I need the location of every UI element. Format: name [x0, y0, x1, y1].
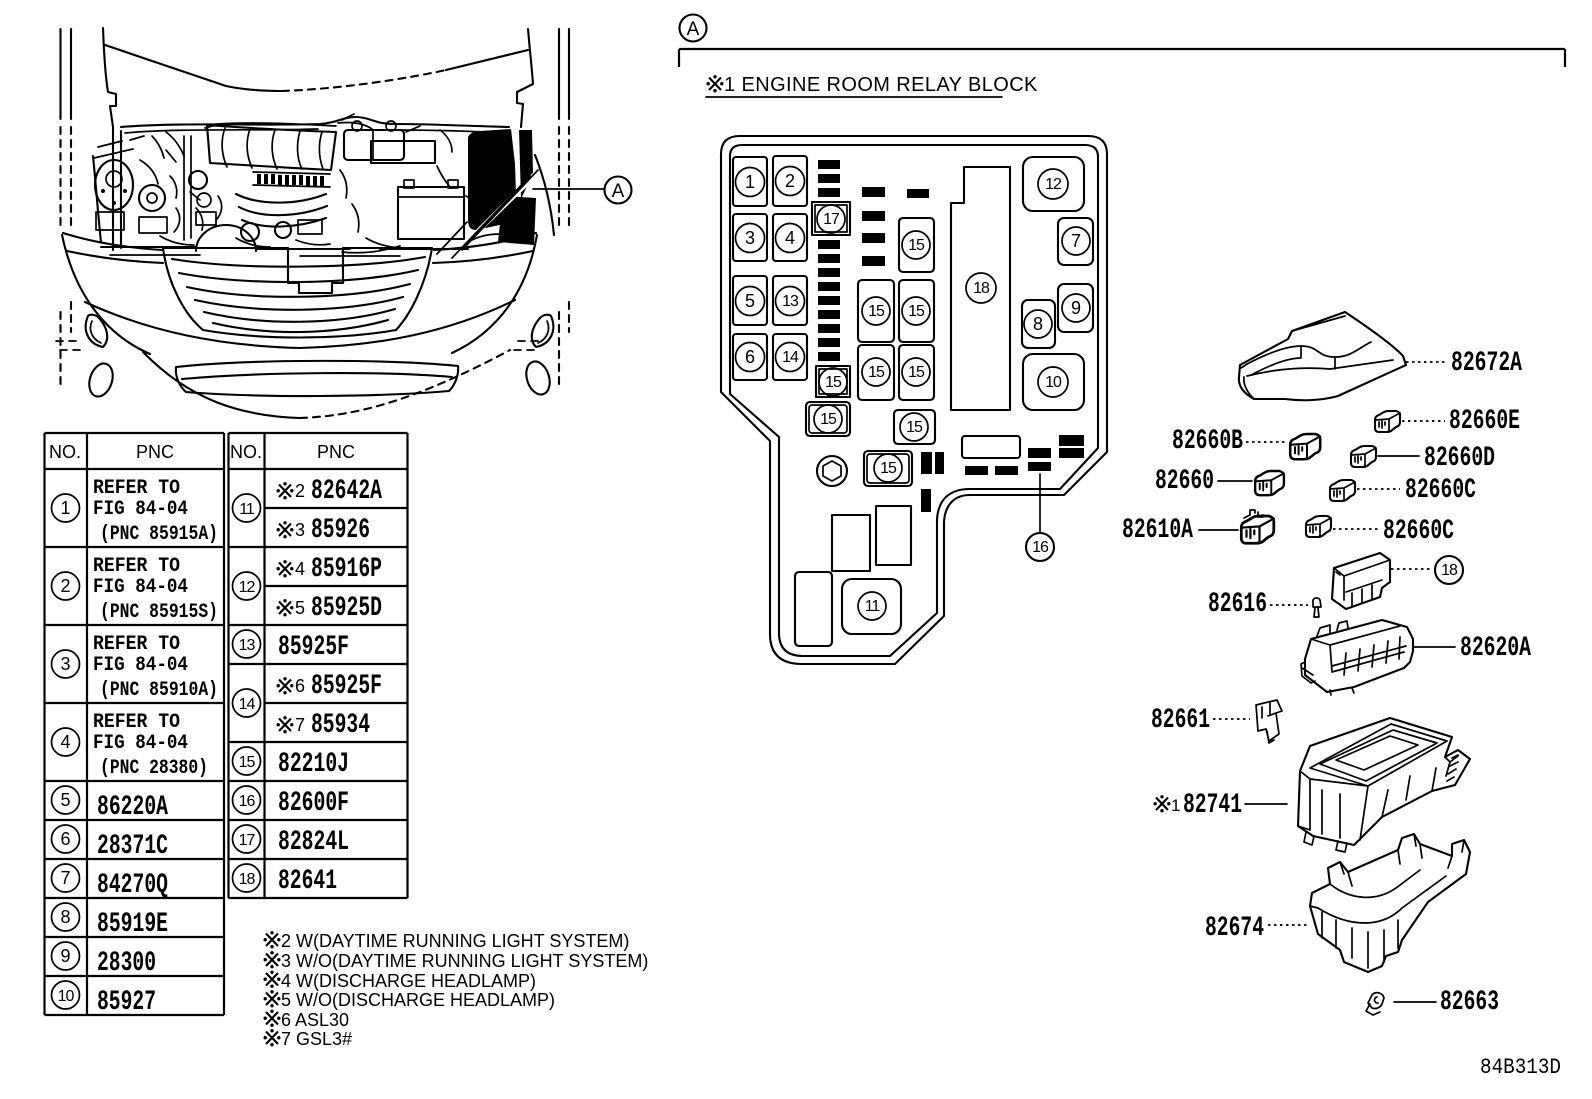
svg-text:15: 15 — [239, 754, 256, 771]
svg-text:12: 12 — [1045, 176, 1062, 193]
svg-text:6: 6 — [60, 829, 70, 849]
svg-text:13: 13 — [239, 637, 256, 654]
svg-text:82210J: 82210J — [278, 749, 349, 780]
svg-text:10: 10 — [1045, 374, 1062, 391]
svg-text:82600F: 82600F — [278, 788, 349, 819]
svg-text:82641: 82641 — [278, 866, 337, 897]
svg-text:82660C: 82660C — [1405, 475, 1476, 506]
svg-text:85916P: 85916P — [311, 554, 382, 585]
svg-text:1: 1 — [1171, 796, 1180, 815]
svg-text:7: 7 — [295, 715, 305, 735]
svg-text:FIG 84-04: FIG 84-04 — [93, 576, 188, 599]
svg-text:REFER TO: REFER TO — [93, 477, 180, 500]
svg-text:REFER TO: REFER TO — [93, 633, 180, 656]
svg-text:18: 18 — [973, 280, 990, 297]
svg-text:(PNC 28380): (PNC 28380) — [100, 757, 208, 780]
svg-text:9: 9 — [60, 946, 70, 966]
svg-text:82660: 82660 — [1155, 466, 1214, 497]
svg-text:18: 18 — [1441, 562, 1458, 579]
svg-text:NO.: NO. — [230, 442, 262, 462]
svg-text:15: 15 — [908, 364, 925, 381]
svg-text:PNC: PNC — [136, 442, 174, 462]
svg-text:85925D: 85925D — [311, 593, 382, 624]
svg-text:PNC: PNC — [317, 442, 355, 462]
svg-text:6 ASL30: 6 ASL30 — [281, 1010, 349, 1030]
svg-text:A: A — [687, 19, 700, 40]
svg-text:(PNC 85915A): (PNC 85915A) — [100, 523, 218, 546]
svg-text:15: 15 — [868, 303, 885, 320]
svg-text:82610A: 82610A — [1122, 515, 1193, 546]
svg-text:6: 6 — [295, 676, 305, 696]
svg-text:15: 15 — [825, 374, 842, 391]
svg-text:85919E: 85919E — [97, 909, 168, 940]
svg-text:82741: 82741 — [1183, 790, 1242, 821]
svg-text:12: 12 — [239, 579, 256, 596]
svg-text:82660D: 82660D — [1424, 443, 1495, 474]
svg-text:85934: 85934 — [311, 710, 370, 741]
svg-text:82660B: 82660B — [1172, 426, 1243, 457]
svg-text:15: 15 — [906, 419, 923, 436]
svg-text:82660E: 82660E — [1449, 406, 1520, 437]
svg-text:REFER TO: REFER TO — [93, 711, 180, 734]
svg-text:82642A: 82642A — [311, 476, 382, 507]
svg-text:13: 13 — [782, 293, 799, 310]
svg-text:3: 3 — [60, 654, 70, 674]
svg-text:5: 5 — [295, 598, 305, 618]
svg-text:4: 4 — [60, 732, 70, 752]
svg-text:(PNC 85915S): (PNC 85915S) — [100, 601, 218, 624]
svg-text:82672A: 82672A — [1451, 348, 1522, 379]
svg-text:11: 11 — [239, 501, 255, 518]
svg-text:15: 15 — [820, 411, 837, 428]
svg-text:85927: 85927 — [97, 987, 156, 1018]
svg-text:17: 17 — [239, 832, 256, 849]
svg-text:14: 14 — [239, 696, 256, 713]
svg-text:3 W/O(DAYTIME RUNNING LIGHT SY: 3 W/O(DAYTIME RUNNING LIGHT SYSTEM) — [281, 951, 648, 971]
svg-text:16: 16 — [239, 793, 256, 810]
svg-text:15: 15 — [908, 303, 925, 320]
svg-text:15: 15 — [880, 460, 897, 477]
svg-text:REFER TO: REFER TO — [93, 555, 180, 578]
svg-text:82663: 82663 — [1440, 987, 1499, 1018]
svg-text:4: 4 — [295, 559, 305, 579]
svg-text:82661: 82661 — [1151, 705, 1210, 736]
svg-text:7 GSL3#: 7 GSL3# — [281, 1029, 352, 1049]
svg-text:8: 8 — [1033, 314, 1043, 334]
svg-text:6: 6 — [745, 347, 755, 367]
svg-text:18: 18 — [239, 871, 256, 888]
svg-text:3: 3 — [295, 520, 305, 540]
svg-text:82674: 82674 — [1205, 913, 1264, 944]
svg-text:NO.: NO. — [49, 442, 81, 462]
svg-text:4 W(DISCHARGE HEADLAMP): 4 W(DISCHARGE HEADLAMP) — [281, 971, 536, 991]
svg-text:84270Q: 84270Q — [97, 870, 168, 901]
svg-text:1: 1 — [745, 172, 755, 192]
svg-text:85926: 85926 — [311, 515, 370, 546]
svg-text:16: 16 — [1032, 539, 1049, 556]
svg-text:2: 2 — [785, 171, 795, 191]
svg-text:15: 15 — [868, 364, 885, 381]
svg-text:FIG 84-04: FIG 84-04 — [93, 498, 188, 521]
svg-text:1 ENGINE ROOM RELAY BLOCK: 1 ENGINE ROOM RELAY BLOCK — [724, 74, 1038, 96]
svg-text:7: 7 — [60, 868, 70, 888]
svg-text:82616: 82616 — [1208, 589, 1267, 620]
svg-text:15: 15 — [908, 237, 925, 254]
svg-text:2 W(DAYTIME RUNNING LIGHT SYST: 2 W(DAYTIME RUNNING LIGHT SYSTEM) — [281, 931, 629, 951]
svg-text:5: 5 — [60, 790, 70, 810]
svg-text:86220A: 86220A — [97, 792, 168, 823]
svg-text:A: A — [612, 181, 625, 202]
svg-text:14: 14 — [782, 349, 799, 366]
svg-text:(PNC 85910A): (PNC 85910A) — [100, 679, 218, 702]
svg-text:FIG 84-04: FIG 84-04 — [93, 654, 188, 677]
svg-text:28300: 28300 — [97, 948, 156, 979]
svg-text:9: 9 — [1071, 298, 1081, 318]
svg-text:17: 17 — [823, 211, 840, 228]
svg-text:5: 5 — [745, 291, 755, 311]
svg-text:82660C: 82660C — [1383, 516, 1454, 547]
svg-text:1: 1 — [60, 498, 70, 518]
svg-text:82824L: 82824L — [278, 827, 349, 858]
svg-text:11: 11 — [865, 598, 881, 615]
svg-text:4: 4 — [785, 228, 795, 248]
svg-text:7: 7 — [1071, 231, 1081, 251]
svg-text:8: 8 — [60, 907, 70, 927]
svg-text:FIG 84-04: FIG 84-04 — [93, 732, 188, 755]
svg-text:84B313D: 84B313D — [1480, 1055, 1561, 1080]
svg-text:85925F: 85925F — [278, 632, 349, 663]
svg-text:3: 3 — [745, 228, 755, 248]
svg-text:85925F: 85925F — [311, 671, 382, 702]
svg-text:82620A: 82620A — [1460, 633, 1531, 664]
svg-text:2: 2 — [60, 576, 70, 596]
svg-text:2: 2 — [295, 481, 305, 501]
svg-text:28371C: 28371C — [97, 831, 168, 862]
svg-text:5 W/O(DISCHARGE HEADLAMP): 5 W/O(DISCHARGE HEADLAMP) — [281, 990, 555, 1010]
svg-text:10: 10 — [58, 988, 75, 1005]
